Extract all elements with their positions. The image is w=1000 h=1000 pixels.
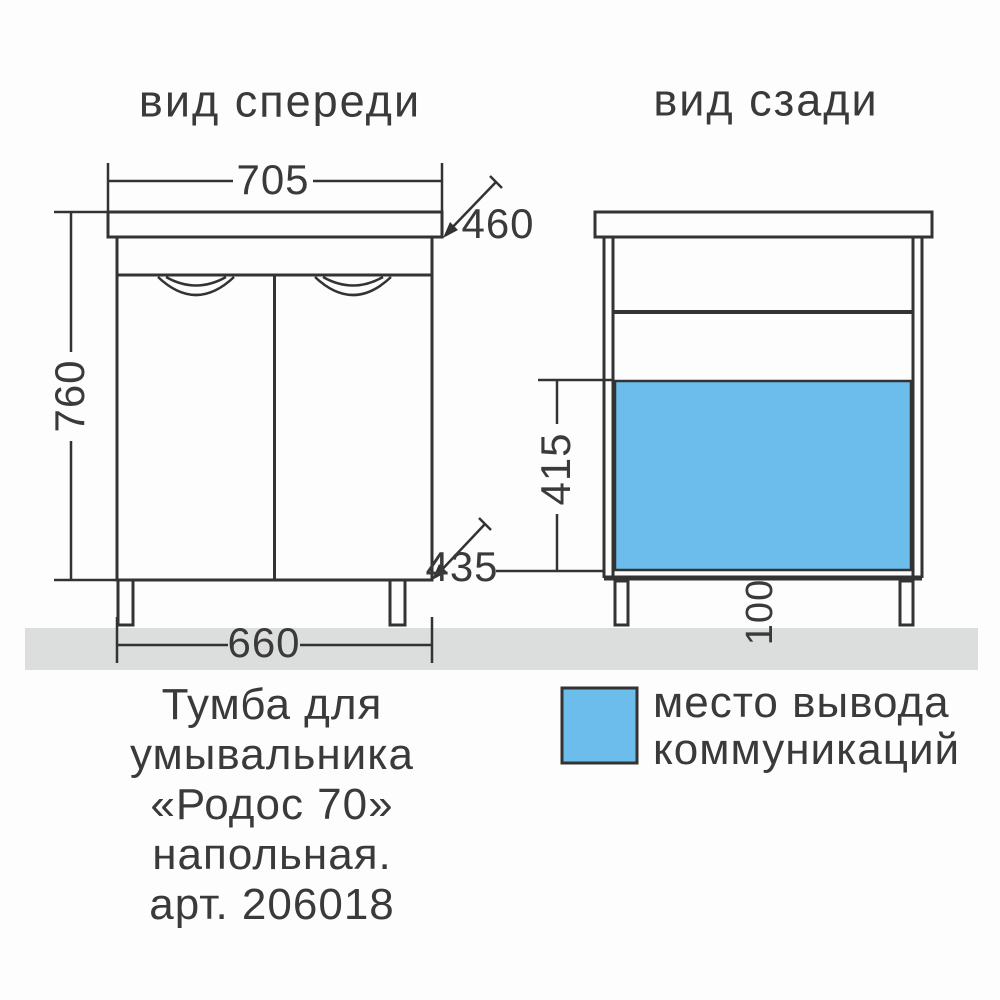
technical-drawing-page: вид спереди вид сзади 705 460 760 435 66… bbox=[0, 0, 1000, 1000]
dim-label-top-depth: 460 bbox=[461, 203, 534, 245]
product-caption: Тумба для умывальника «Родос 70» напольн… bbox=[62, 680, 482, 930]
caption-line2: умывальника bbox=[62, 730, 482, 780]
back-view-title: вид сзади bbox=[653, 78, 878, 123]
legend-label-line2: коммуникаций bbox=[653, 726, 960, 773]
front-leg-right bbox=[390, 580, 405, 625]
caption-line5: арт. 206018 bbox=[62, 880, 482, 930]
front-countertop bbox=[108, 212, 442, 237]
dim-label-leg-height: 100 bbox=[741, 579, 779, 645]
back-view-drawing bbox=[595, 212, 932, 625]
caption-line4: напольная. bbox=[62, 830, 482, 880]
front-leg-left bbox=[118, 580, 133, 625]
dim-label-height: 760 bbox=[49, 359, 91, 432]
back-leg-right bbox=[900, 581, 913, 625]
dim-label-bottom-width: 660 bbox=[227, 622, 300, 664]
floor-band bbox=[25, 628, 978, 670]
legend-label: место вывода коммуникаций bbox=[653, 679, 960, 773]
back-leg-left bbox=[615, 581, 628, 625]
dim-label-bottom-depth: 435 bbox=[425, 546, 498, 588]
caption-line3: «Родос 70» bbox=[62, 780, 482, 830]
dim-label-outlet-height: 415 bbox=[535, 432, 577, 505]
legend-swatch bbox=[562, 688, 637, 763]
front-view-title: вид спереди bbox=[139, 79, 421, 124]
caption-line1: Тумба для bbox=[62, 680, 482, 730]
front-view-drawing bbox=[108, 212, 442, 625]
communications-outlet-area bbox=[615, 381, 911, 570]
back-countertop bbox=[595, 212, 932, 237]
dim-label-top-width: 705 bbox=[236, 159, 309, 201]
legend-label-line1: место вывода bbox=[653, 679, 960, 726]
